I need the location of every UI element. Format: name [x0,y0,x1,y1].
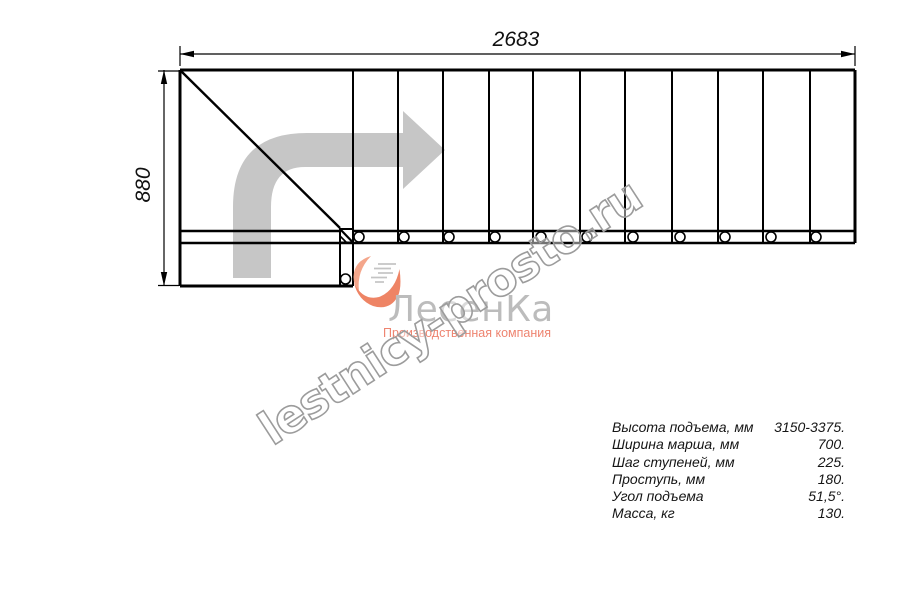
spec-label: Ширина марша, мм [612,436,739,453]
spec-label: Проступь, мм [612,471,705,488]
spec-value: 180. [818,471,845,488]
spec-row: Шаг ступеней, мм 225. [612,454,845,471]
dimension-left: 880 [132,70,179,286]
spec-label: Масса, кг [612,505,675,522]
spec-row: Масса, кг 130. [612,505,845,522]
dimension-top: 2683 [180,28,855,66]
spec-value: 51,5°. [808,488,845,505]
dim-arrow-right-icon [841,51,855,57]
spec-value: 3150-3375. [774,419,845,436]
dim-arrow-down-icon [161,272,167,286]
left-dimension-value: 880 [132,167,155,202]
spec-value: 225. [818,454,845,471]
specs-table: Высота подъема, мм 3150-3375. Ширина мар… [612,419,845,523]
spec-label: Шаг ступеней, мм [612,454,735,471]
spec-row: Проступь, мм 180. [612,471,845,488]
spec-label: Угол подъема [612,488,704,505]
stair-plan-drawing: 2683 880 ЛесенКа Производственная компан… [0,0,900,600]
spec-row: Высота подъема, мм 3150-3375. [612,419,845,436]
spec-value: 130. [818,505,845,522]
watermark-text: lestnicy-prosto.ru [249,168,651,455]
hatched-joint-square [340,229,353,243]
dim-arrow-up-icon [161,70,167,84]
spec-value: 700. [818,436,845,453]
top-dimension-value: 2683 [492,28,540,51]
dim-arrow-left-icon [180,51,194,57]
spec-row: Ширина марша, мм 700. [612,436,845,453]
spec-row: Угол подъема 51,5°. [612,488,845,505]
spec-label: Высота подъема, мм [612,419,754,436]
